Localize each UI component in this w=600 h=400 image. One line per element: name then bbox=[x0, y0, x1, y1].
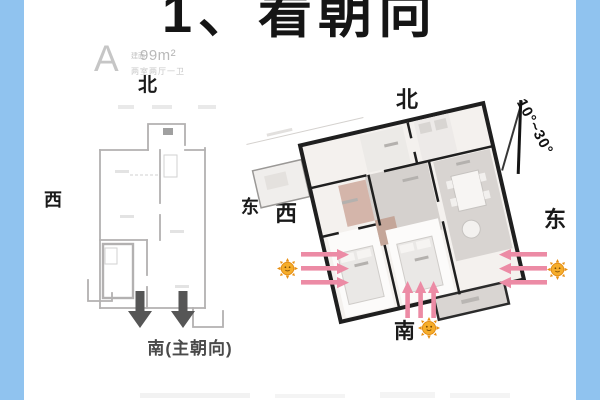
area-text: 建面99m² bbox=[131, 47, 176, 65]
balcony-equipment bbox=[163, 128, 173, 135]
area-value: 99m² bbox=[140, 47, 176, 64]
compass-north-right: 北 bbox=[396, 82, 418, 114]
cutoff-text-smudge bbox=[275, 394, 345, 398]
floor-plan-left bbox=[80, 115, 240, 335]
cutoff-text-smudge bbox=[140, 393, 250, 398]
bathroom-outline bbox=[103, 244, 133, 298]
sunlight-arrows-east bbox=[499, 249, 549, 291]
cutoff-text-smudge bbox=[380, 392, 435, 398]
sunlight-arrows-south bbox=[402, 281, 442, 319]
compass-east-right: 东 bbox=[544, 202, 566, 234]
unit-a-label: A bbox=[94, 38, 119, 80]
compass-north-left: 北 bbox=[138, 70, 157, 97]
left-accent-bar bbox=[0, 0, 24, 400]
sun-icon bbox=[277, 258, 298, 279]
area-prefix-label: 建面 bbox=[131, 53, 140, 60]
dimension-smudge bbox=[198, 105, 216, 109]
dimension-smudge bbox=[118, 105, 134, 109]
dimension-smudge bbox=[152, 105, 172, 109]
sunlight-arrows-west bbox=[301, 249, 351, 291]
sun-icon bbox=[418, 317, 440, 339]
right-accent-bar bbox=[576, 0, 600, 400]
south-main-orientation-label: 南(主朝向) bbox=[110, 334, 270, 359]
south-orientation-arrows bbox=[128, 291, 195, 328]
page-title: 1、看朝向 bbox=[0, 0, 600, 48]
sun-icon bbox=[547, 259, 568, 280]
cutoff-text-smudge bbox=[450, 393, 510, 398]
compass-east-left: 东 bbox=[241, 193, 259, 219]
compass-west-left: 西 bbox=[44, 186, 62, 212]
compass-south-right: 南 bbox=[394, 315, 415, 345]
